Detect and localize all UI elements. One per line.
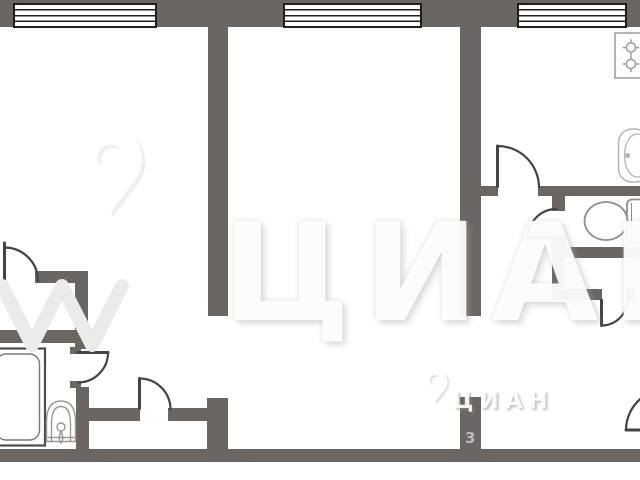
watermark-brand-small: ЦИАН <box>452 390 554 413</box>
cian-pin-icon <box>423 368 450 404</box>
watermark-brand-large: ЦИАН <box>222 206 640 342</box>
door-hall <box>140 379 171 410</box>
bathtub <box>0 349 45 446</box>
door-kitchen <box>498 146 540 188</box>
watermark-ghost-strokes <box>2 286 122 345</box>
door-balcony <box>626 398 640 430</box>
floor-plan: ЦИАН ЦИАН 3 <box>0 0 640 480</box>
washbasin <box>47 401 76 443</box>
cian-pin-icon <box>78 126 146 217</box>
door-bedroom <box>5 243 39 281</box>
door-bathroom <box>78 353 108 383</box>
stove-icon <box>615 33 640 78</box>
kitchen-sink <box>619 129 640 182</box>
watermark-number: 3 <box>465 429 475 447</box>
